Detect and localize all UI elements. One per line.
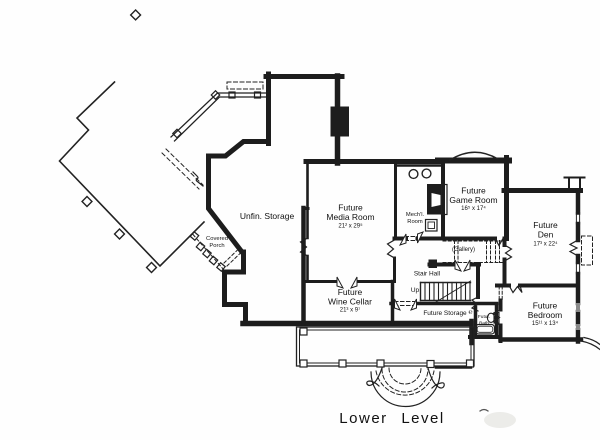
svg-text:17³ x 22⁴: 17³ x 22⁴ [533,241,558,248]
svg-text:Bath: Bath [479,321,489,327]
svg-text:21² x 29⁵: 21² x 29⁵ [338,223,363,230]
svg-text:Room: Room [407,219,423,225]
svg-text:Lower Level: Lower Level [339,410,444,427]
svg-text:Future: Future [338,287,363,297]
svg-text:Covered: Covered [206,236,228,242]
svg-text:21³ x 9⁷: 21³ x 9⁷ [340,307,361,314]
svg-text:Stair Hall: Stair Hall [414,271,441,278]
svg-text:Future: Future [533,220,558,230]
svg-text:Bedroom: Bedroom [528,310,563,320]
svg-text:(Gallery): (Gallery) [452,247,475,253]
svg-text:℮: ℮ [469,309,473,316]
svg-text:Mech'l.: Mech'l. [406,212,425,218]
svg-text:15¹¹ x 13⁴: 15¹¹ x 13⁴ [532,320,559,327]
svg-text:Futur.: Futur. [478,314,490,320]
svg-text:Den: Den [538,230,554,240]
svg-text:Up: Up [411,287,420,294]
svg-text:Wine Cellar: Wine Cellar [328,297,372,307]
svg-text:Unfin. Storage: Unfin. Storage [240,211,295,221]
svg-text:Game Room: Game Room [449,195,497,205]
svg-text:Porch: Porch [209,243,224,249]
svg-text:Future: Future [338,203,363,213]
svg-text:Future: Future [533,301,558,311]
svg-text:Future Storage: Future Storage [423,310,467,317]
svg-text:Media Room: Media Room [326,212,374,222]
svg-text:Future: Future [461,186,486,196]
svg-text:16⁵ x 17⁴: 16⁵ x 17⁴ [461,205,486,212]
